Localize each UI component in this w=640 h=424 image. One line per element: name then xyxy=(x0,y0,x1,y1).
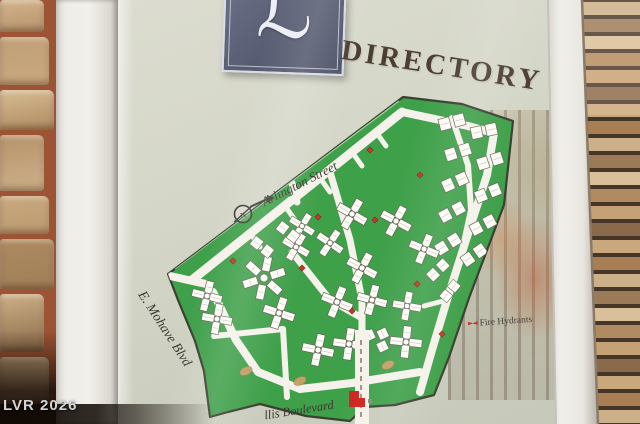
photo-of-directory-sign: N ℒ DIRECTORY Arlington Street E. Mohave… xyxy=(0,0,640,424)
stone-block xyxy=(0,135,44,191)
stone-highlight xyxy=(578,0,640,115)
stone-block xyxy=(580,121,640,134)
photo-watermark: LVR 2026 xyxy=(3,397,77,414)
stone-block xyxy=(0,239,54,289)
stone-block xyxy=(0,37,49,85)
stone-block xyxy=(0,196,49,234)
stone-block xyxy=(0,0,44,32)
stone-block xyxy=(0,90,54,130)
frame-right-and-stone-wall xyxy=(0,0,640,424)
stone-block xyxy=(582,138,640,151)
